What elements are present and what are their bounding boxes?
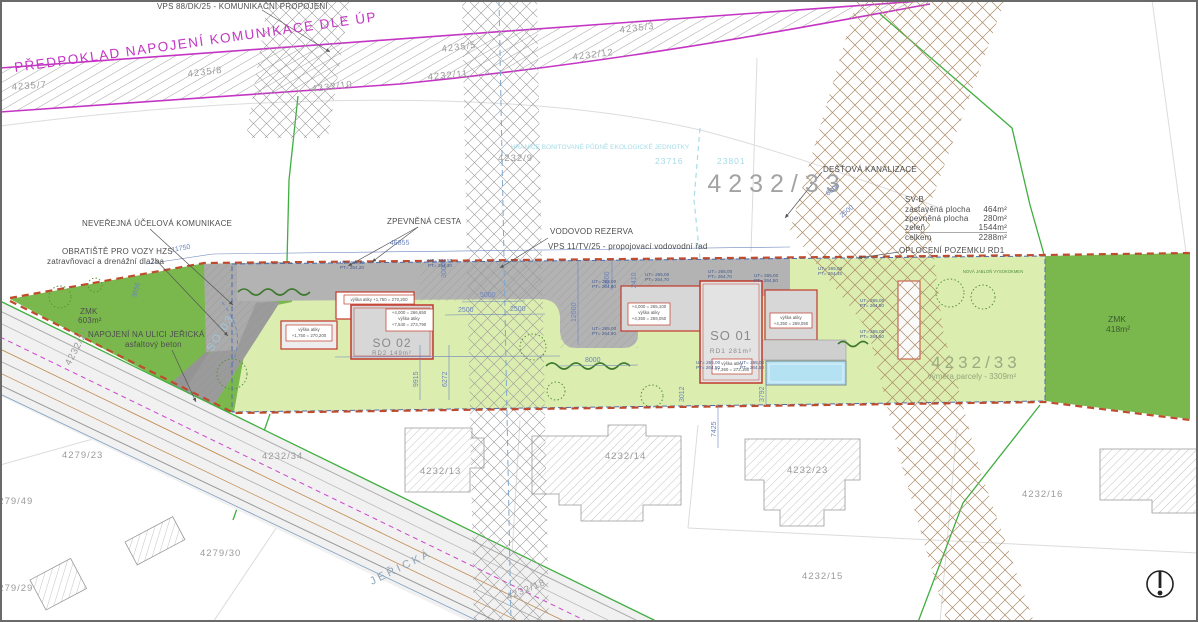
svb-row-value: 2288m² bbox=[979, 233, 1007, 242]
svg-text:UT= 265,00PT= 264,70: UT= 265,00PT= 264,70 bbox=[645, 272, 670, 282]
dim-label: 5000 bbox=[480, 292, 496, 299]
parcel-label: 4232/14 bbox=[605, 451, 646, 462]
pool bbox=[766, 361, 846, 385]
atika-text-2c: +7,540 = 273,790 bbox=[392, 322, 427, 327]
dim-label: 9915 bbox=[413, 371, 420, 387]
bpej-code-label: 23716 bbox=[655, 156, 684, 166]
parcel-label: 4232/11 bbox=[427, 68, 468, 83]
dim-label: 2410 bbox=[631, 272, 638, 288]
svb-row-value: 280m² bbox=[983, 214, 1007, 223]
zmk-left-label: ZMK bbox=[80, 307, 98, 316]
nova-jablon-label: NOVÁ JABLOŇ VYSOKOKMEN bbox=[963, 269, 1023, 274]
svg-text:UT= 264,30PT= 264,20: UT= 264,30PT= 264,20 bbox=[340, 260, 365, 270]
so01-area-label: RD1 281m² bbox=[710, 348, 752, 355]
zpevnena-label: ZPEVNĚNÁ CESTA bbox=[387, 217, 462, 226]
atika-text-6b: +4,350 = 269,050 bbox=[774, 321, 809, 326]
parcel-label: 4279/30 bbox=[200, 548, 241, 559]
parcel-label: 4232/23 bbox=[787, 465, 828, 476]
zatravnovaci-label: zatravňovací a drenážní dlažba bbox=[47, 257, 165, 266]
atika-text-3a: výška atiky bbox=[298, 327, 320, 332]
atika-text-4c: +4,350 = 269,050 bbox=[632, 316, 667, 321]
svb-row-key: zpevněná plocha bbox=[905, 214, 969, 223]
svb-row-key: zeleň bbox=[905, 223, 925, 232]
parcel-label: 4232/9 bbox=[498, 153, 533, 164]
parcel-label: 4232/34 bbox=[262, 451, 303, 462]
parcel-label: 4232/13 bbox=[420, 466, 461, 477]
parcel-label: 4279/49 bbox=[0, 496, 33, 507]
dim-label: 11750 bbox=[171, 244, 191, 254]
svg-text:UT= 265,00PT= 264,45: UT= 265,00PT= 264,45 bbox=[818, 266, 843, 276]
north-arrow-icon bbox=[1147, 571, 1173, 597]
obratiste-label: OBRATIŠTĚ PRO VOZY HZS bbox=[62, 247, 173, 256]
svg-text:UT= 264,50PT= 264,30: UT= 264,50PT= 264,30 bbox=[428, 258, 453, 268]
small-building bbox=[30, 558, 87, 610]
atika-text-2b: výška atiky bbox=[398, 316, 420, 321]
parcel-label: 4279/29 bbox=[0, 583, 33, 594]
so01-paving bbox=[762, 340, 846, 360]
small-building bbox=[125, 517, 185, 565]
atika-text-1: výška atiky +1,750 = 270,200 bbox=[350, 297, 408, 302]
bpej-title-label: HRANICE BONITOVANÉ PŮDNĚ EKOLOGICKÉ JEDN… bbox=[511, 142, 690, 151]
atika-text-3b: +1,750 = 270,200 bbox=[292, 333, 327, 338]
building-4232-14 bbox=[532, 425, 681, 521]
zmk-right-area bbox=[1045, 253, 1190, 419]
neverejna-label: NEVEŘEJNÁ ÚČELOVÁ KOMUNIKACE bbox=[82, 219, 232, 228]
dim-label: 6272 bbox=[442, 371, 449, 387]
svg-text:UT= 265,00PT= 264,50: UT= 265,00PT= 264,50 bbox=[860, 298, 885, 308]
svb-row-key: zastavěná plocha bbox=[905, 205, 971, 214]
dim-label: 2500 bbox=[510, 306, 526, 313]
plot-number-label: 4232/33 bbox=[931, 353, 1020, 372]
parcel-label: 4232/16 bbox=[1022, 489, 1063, 500]
site-plan-canvas: výška atiky +1,750 = 270,200 +4,000 = 26… bbox=[0, 0, 1198, 622]
vps-top-label: VPS 88/DK/25 - KOMUNIKAČNÍ PROPOJENÍ bbox=[157, 2, 328, 11]
so01-label: SO 01 bbox=[710, 328, 752, 343]
svg-text:UT= 265,00PT= 264,50: UT= 265,00PT= 264,50 bbox=[754, 273, 779, 283]
svg-text:UT= 265,00PT= 264,50: UT= 265,00PT= 264,50 bbox=[860, 329, 885, 339]
svg-text:UT= 265,00PT= 264,90: UT= 265,00PT= 264,90 bbox=[592, 326, 617, 336]
plot-area-label: výměra parcely - 3309m² bbox=[928, 372, 1017, 381]
dim-label: 7425 bbox=[711, 421, 718, 437]
zmk-right-area-label: 418m² bbox=[1106, 324, 1130, 334]
svg-text:UT= 265,00PT= 264,50: UT= 265,00PT= 264,50 bbox=[696, 360, 721, 370]
zmk-right-label: ZMK bbox=[1108, 314, 1126, 324]
napojeni-label-1: NAPOJENÍ NA ULICI JEŘICKÁ bbox=[88, 330, 205, 339]
vodovod-label-1: VODOVOD REZERVA bbox=[550, 227, 634, 236]
dim-label: 46855 bbox=[390, 240, 410, 247]
dim-label: 3012 bbox=[679, 386, 686, 402]
destova-label: DEŠŤOVÁ KANALIZACE bbox=[823, 165, 917, 174]
site-plan-drawing: výška atiky +1,750 = 270,200 +4,000 = 26… bbox=[0, 0, 1198, 622]
napojeni-label-2: asfaltový beton bbox=[125, 340, 182, 349]
svb-row-key: celkem bbox=[905, 233, 932, 242]
so02-area-label: RD2 149m² bbox=[372, 351, 412, 357]
vodovod-label-2: VPS 11/TV/25 - propojovací vodovodní řad bbox=[548, 242, 708, 251]
svb-row-value: 464m² bbox=[983, 205, 1007, 214]
atika-text-2a: +4,000 = 266,650 bbox=[392, 310, 427, 315]
svb-row-value: 1544m² bbox=[979, 223, 1007, 232]
dim-label: 8000 bbox=[585, 357, 601, 364]
parcel-label: 4232/15 bbox=[802, 571, 843, 582]
parcel-label: 4279/23 bbox=[62, 450, 103, 461]
building-4232-23 bbox=[745, 439, 860, 526]
bpej-boundary-line bbox=[694, 128, 700, 258]
oploceni-label: OPLOCENÍ POZEMKU RD1 bbox=[899, 246, 1005, 255]
svg-text:UT= 265,00PT= 264,50: UT= 265,00PT= 264,50 bbox=[740, 360, 765, 370]
building-right-edge bbox=[1100, 449, 1198, 513]
atika-text-4b: výška atiky bbox=[638, 310, 660, 315]
dim-label: 2500 bbox=[458, 307, 474, 314]
zmk-left-area-label: 603m² bbox=[78, 316, 102, 325]
svg-text:UT= 265,00PT= 264,80: UT= 265,00PT= 264,80 bbox=[592, 279, 617, 289]
svb-title: SV-B bbox=[905, 195, 924, 204]
dim-label: 12600 bbox=[571, 302, 578, 322]
svg-text:UT= 265,00PT= 264,70: UT= 265,00PT= 264,70 bbox=[708, 269, 733, 279]
so02-label: SO 02 bbox=[372, 336, 411, 350]
atika-text-4a: +4,000 = 265,100 bbox=[632, 304, 667, 309]
dim-label: 3792 bbox=[759, 386, 766, 402]
atika-text-6a: výška atiky bbox=[780, 315, 802, 320]
bpej-code-label: 23801 bbox=[717, 156, 746, 166]
